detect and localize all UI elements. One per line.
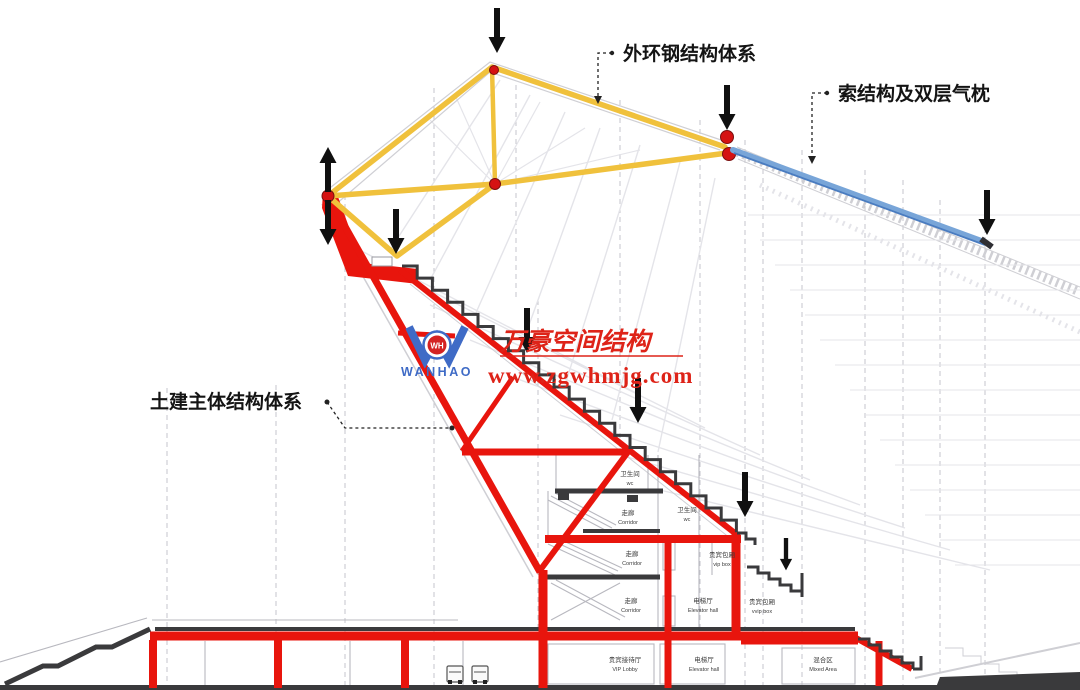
- ground-line: [0, 685, 940, 690]
- room-label: vvip box: [752, 609, 772, 615]
- room-label: Corridor: [622, 561, 642, 567]
- pin-node: [490, 66, 499, 75]
- background-stands: [737, 147, 1080, 688]
- room-label: Corridor: [618, 520, 638, 526]
- wanhao-logo-icon: WH WANHAO: [401, 327, 473, 379]
- pin-node: [721, 131, 734, 144]
- load-arrow-down-icon: [719, 85, 736, 130]
- room-label: 贵宾包厢: [749, 597, 776, 606]
- room-label: wc: [683, 517, 691, 523]
- room-label: 走廊: [625, 596, 639, 605]
- room-label: 卫生间: [620, 469, 640, 478]
- room-label: 电梯厅: [694, 655, 714, 664]
- background-roof-web: [322, 72, 990, 577]
- civil-structure: [150, 192, 912, 688]
- room-label: Mixed Area: [809, 667, 837, 673]
- civil-structure-label: 土建主体结构体系: [150, 390, 302, 413]
- load-arrow-down-icon: [737, 472, 754, 517]
- truck-icon: [447, 666, 463, 684]
- pin-node: [490, 179, 501, 190]
- room-label: Elevator hall: [688, 608, 718, 614]
- leader-arrowhead: [808, 156, 816, 164]
- cable-label: 索结构及双层气枕: [838, 82, 990, 105]
- watermark-brand: 万豪空间结构: [499, 328, 654, 356]
- room-label: 走廊: [622, 508, 636, 517]
- svg-text:WH: WH: [430, 342, 444, 351]
- room-label: 电梯厅: [693, 596, 713, 605]
- room-label: vip box: [713, 562, 731, 568]
- room-label: 贵宾包厢: [709, 550, 736, 559]
- escalator-stairs: [551, 580, 625, 620]
- ground-ramp: [935, 672, 1080, 690]
- watermark-url: www.zgwhmjg.com: [488, 363, 693, 388]
- diagram-svg: 卫生间 wc 走廊 Corridor 卫生间 wc 走廊 Corridor 贵宾…: [0, 0, 1080, 690]
- room-label: Elevator hall: [689, 667, 719, 673]
- bearing-pad: [372, 257, 392, 266]
- room-label: 走廊: [626, 549, 640, 558]
- room-label: 混合区: [813, 655, 833, 664]
- room-label: 贵宾接待厅: [609, 655, 642, 664]
- outer-ring-label: 外环钢结构体系: [623, 42, 756, 65]
- load-arrow-down-icon: [979, 190, 996, 235]
- room-label: VIP Lobby: [612, 667, 638, 673]
- svg-text:WANHAO: WANHAO: [401, 365, 473, 379]
- truck-icon: [472, 666, 488, 684]
- room-label: 卫生间: [677, 505, 697, 514]
- building-interior: [0, 452, 855, 686]
- entry-ramp-steps: [5, 629, 150, 684]
- room-label: wc: [626, 481, 634, 487]
- room-label: Corridor: [621, 608, 641, 614]
- load-arrow-down-icon: [780, 538, 792, 570]
- structural-section-diagram: 卫生间 wc 走廊 Corridor 卫生间 wc 走廊 Corridor 贵宾…: [0, 0, 1080, 690]
- load-arrow-down-icon: [489, 8, 506, 53]
- leader-end-dot: [450, 426, 455, 431]
